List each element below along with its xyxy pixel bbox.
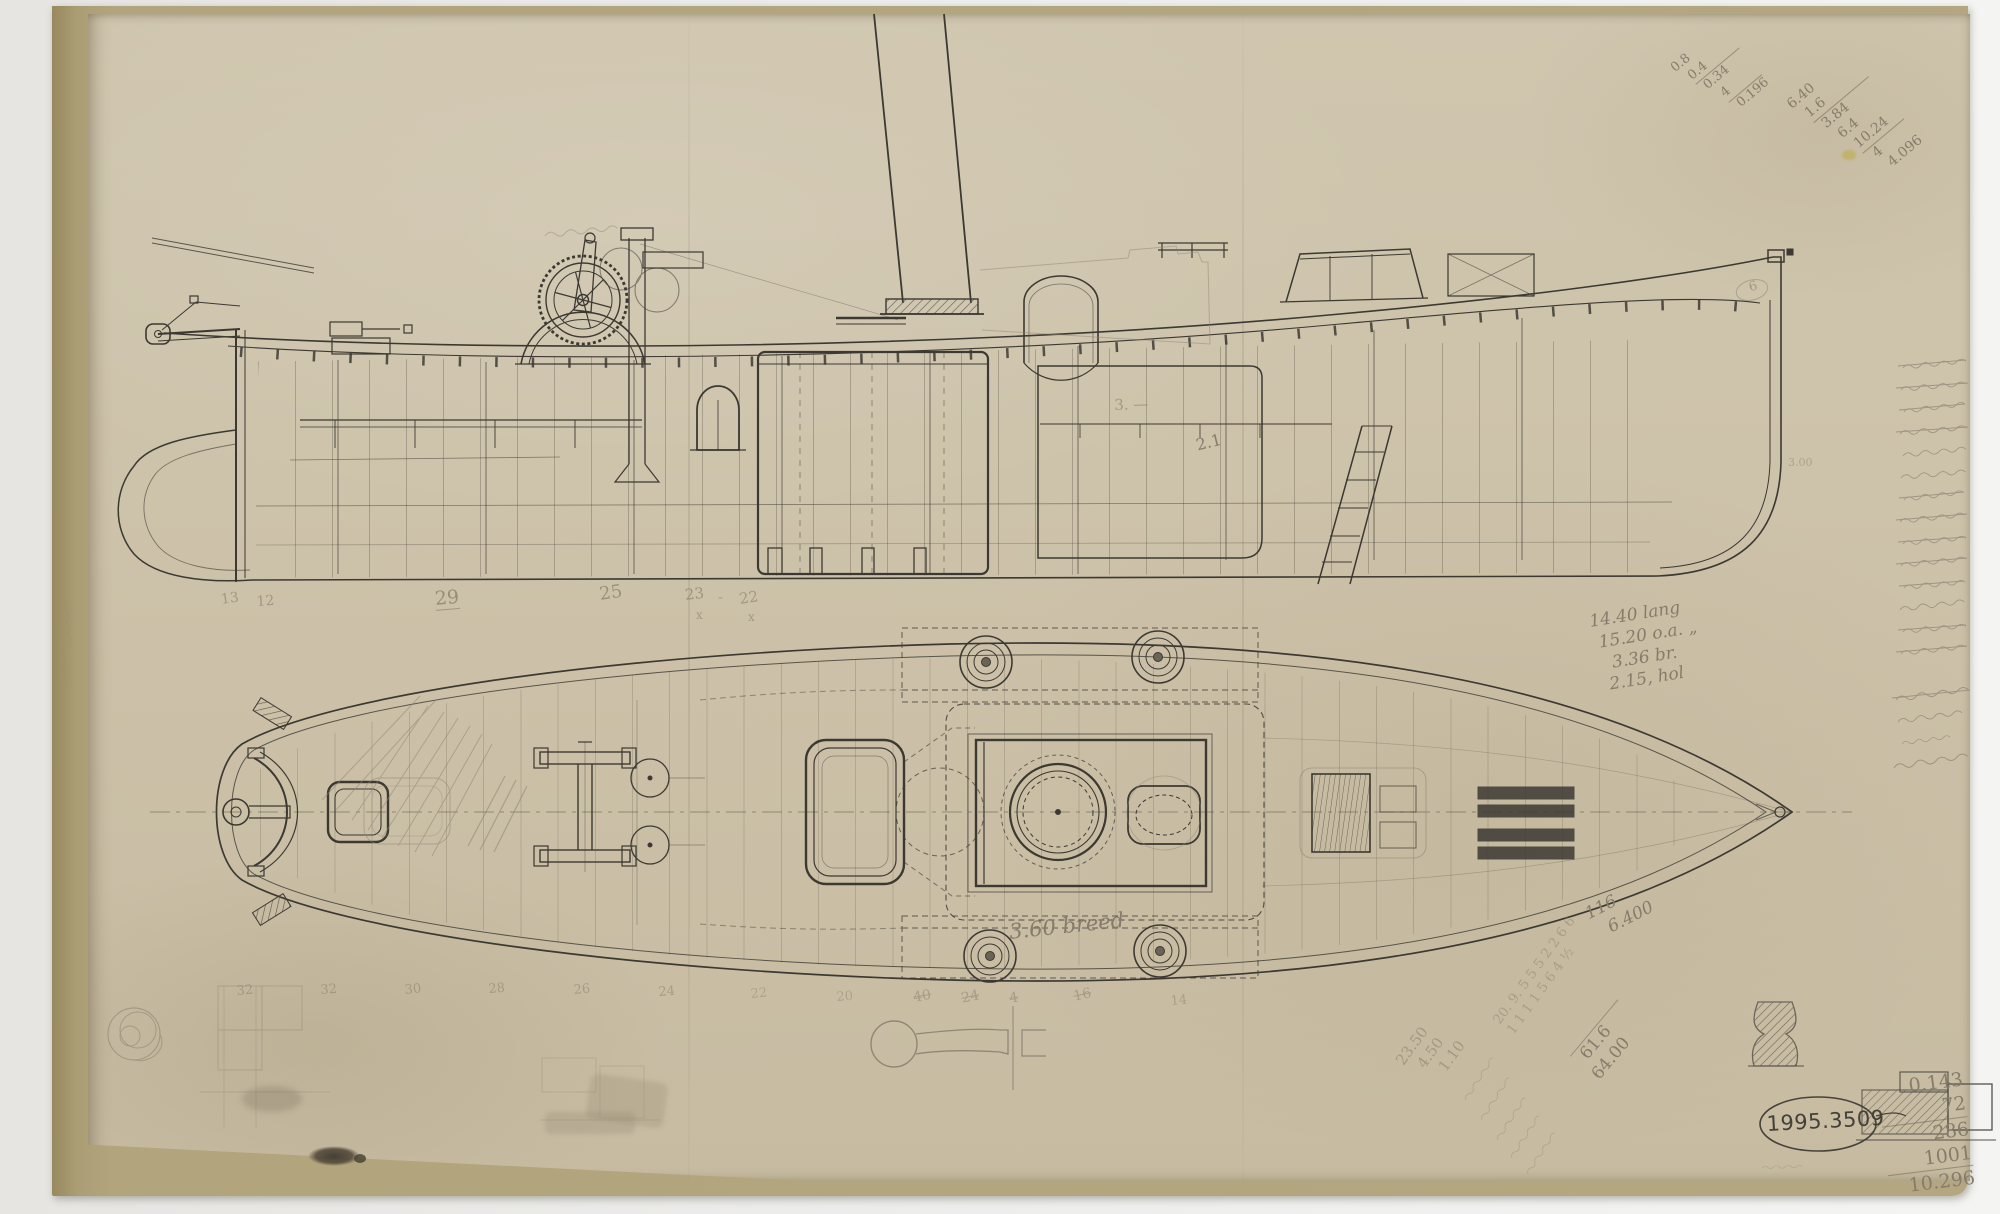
ink-stain <box>308 1146 360 1166</box>
station-number: 26 <box>573 982 591 998</box>
stay-wire <box>640 244 898 320</box>
small-scribble <box>1762 1165 1803 1169</box>
calc-note-c: 0.143 72 286 1001 10.296 <box>1876 1068 1976 1201</box>
bollard-sketch <box>1748 1002 1804 1066</box>
stem-dimension: 3.00 <box>1788 456 1813 469</box>
bulwark-stanchions <box>240 305 1750 363</box>
steering-wheel <box>515 233 651 364</box>
station-number: 23 <box>684 584 705 604</box>
station-number: 22 <box>738 587 759 607</box>
pencil-scribble-hatch <box>322 696 527 856</box>
skylight-frame <box>1280 249 1534 302</box>
station-number: 29 <box>434 586 460 611</box>
word-column-scribbles <box>1463 1057 1557 1175</box>
station-number: 25 <box>598 581 624 605</box>
aft-compartment <box>1038 366 1332 558</box>
rudder <box>118 330 252 582</box>
station-x-mark: x <box>748 610 755 624</box>
berth-lines <box>300 420 642 448</box>
spiral-sketch <box>108 1008 162 1061</box>
tiller <box>146 296 240 344</box>
deck-edge-dashed-bands <box>700 628 1258 978</box>
tape-mark <box>545 1112 635 1134</box>
casing-pencil-outline <box>980 246 1210 344</box>
companion-arch <box>690 386 746 450</box>
photographed-drawing: 0.8 0.4 0.34 4 0.196 6.40 1.6 3.84 6.4 1… <box>0 0 2000 1214</box>
margin-marks <box>61 602 70 687</box>
windlass <box>534 700 705 925</box>
crossed-number: 40 <box>912 987 932 1006</box>
deck-grating-bars <box>1478 787 1574 859</box>
connecting-rod-sketch <box>871 1006 1046 1090</box>
length-mark: 3. — <box>1114 395 1149 414</box>
station-number: 14 <box>1170 993 1188 1009</box>
stern-boom <box>152 238 314 273</box>
station-number: 22 <box>750 986 768 1002</box>
smudge <box>242 1086 302 1112</box>
station-number: 13 <box>220 590 240 608</box>
station-x-mark: x <box>696 608 703 622</box>
station-number: 24 <box>658 984 676 1000</box>
quarter-cleat <box>252 894 290 926</box>
bow-stem <box>1658 249 1793 576</box>
deck-line <box>228 299 1760 356</box>
keel-line <box>252 576 1658 580</box>
station-number: 30 <box>404 981 422 998</box>
ink-stain <box>354 1154 366 1163</box>
ship-drawing <box>0 0 2000 1214</box>
station-number: 32 <box>236 983 254 999</box>
pencil-word-scribble <box>545 226 618 238</box>
station-number: 20 <box>836 989 854 1005</box>
steam-dome <box>1024 276 1098 380</box>
side-elevation <box>118 14 1793 584</box>
funnel <box>874 14 984 314</box>
right-margin-crossed-list <box>1892 359 1970 769</box>
stringer-lines <box>256 457 1672 545</box>
station-number: - <box>718 588 723 606</box>
station-number: 32 <box>320 982 338 998</box>
station-number: 28 <box>488 981 506 997</box>
station-number: 12 <box>256 593 275 610</box>
foredeck-box <box>1300 768 1426 858</box>
boiler-block <box>758 352 988 574</box>
ventilator-pipe <box>615 228 659 482</box>
ladder <box>1318 426 1392 584</box>
quarter-cleat <box>253 698 291 730</box>
dimension-note: 14.40 lang 15.20 o.a. „ 3.36 br. 2.15, h… <box>1588 596 1705 698</box>
